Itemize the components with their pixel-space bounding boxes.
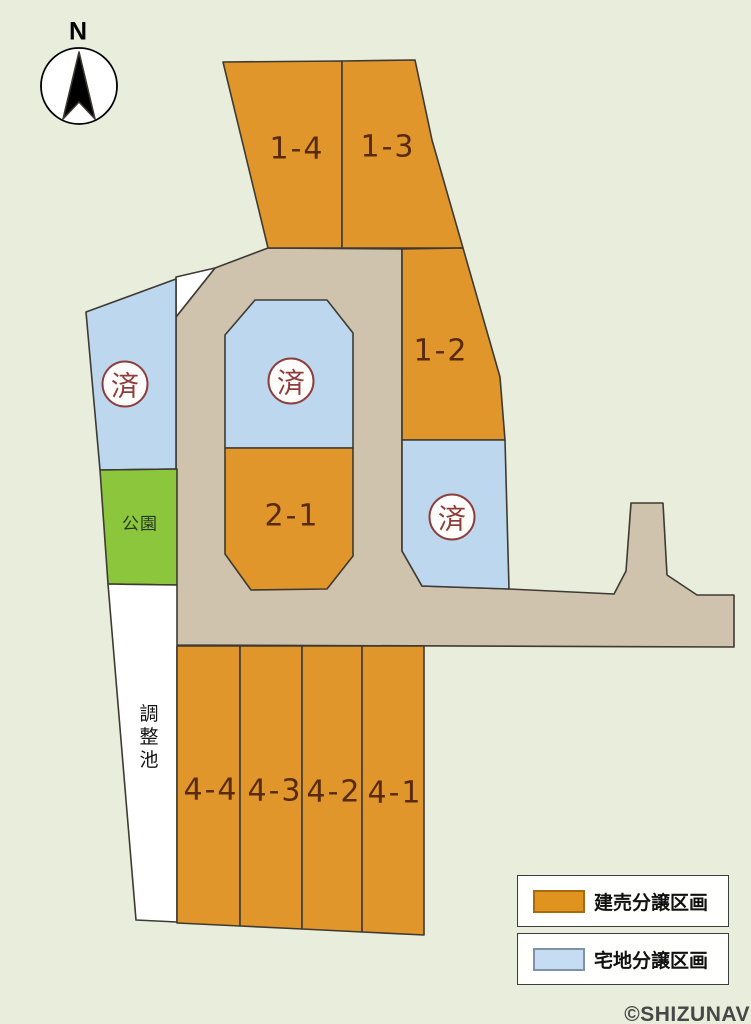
lot-2-1-label: 2-1 xyxy=(265,499,320,534)
lot-4-2-label: 4-2 xyxy=(307,775,362,810)
compass-label: N xyxy=(69,18,87,47)
legend-label-built: 建売分譲区画 xyxy=(594,888,708,915)
sold-stamp: 済 xyxy=(429,494,476,541)
pond-label: 調整池 xyxy=(134,704,161,773)
legend-label-land: 宅地分譲区画 xyxy=(594,946,708,973)
lot-4-3-label: 4-3 xyxy=(248,774,303,809)
sold-stamp-text: 済 xyxy=(438,497,466,537)
lot-1-4-label: 1-4 xyxy=(270,132,325,167)
sold-stamp: 済 xyxy=(102,361,149,408)
lot-4-4-label: 4-4 xyxy=(184,773,239,808)
sold-stamp: 済 xyxy=(268,358,315,405)
legend-swatch-built xyxy=(533,890,585,913)
watermark: ©SHIZUNAV xyxy=(624,1003,750,1024)
lot-4-1-label: 4-1 xyxy=(368,776,423,811)
lot-1-2-label: 1-2 xyxy=(414,334,469,369)
legend-item-land: 宅地分譲区画 xyxy=(517,933,729,985)
subdivision-map: N 1-4 1-3 1-2 2-1 4-4 4-3 4-2 4-1 済 済 済 … xyxy=(0,0,751,1024)
legend-item-built: 建売分譲区画 xyxy=(517,875,729,927)
sold-stamp-text: 済 xyxy=(111,364,139,404)
park-label: 公園 xyxy=(122,510,158,535)
legend-swatch-land xyxy=(533,948,585,971)
sold-stamp-text: 済 xyxy=(277,361,305,401)
lot-1-3-label: 1-3 xyxy=(361,130,416,165)
